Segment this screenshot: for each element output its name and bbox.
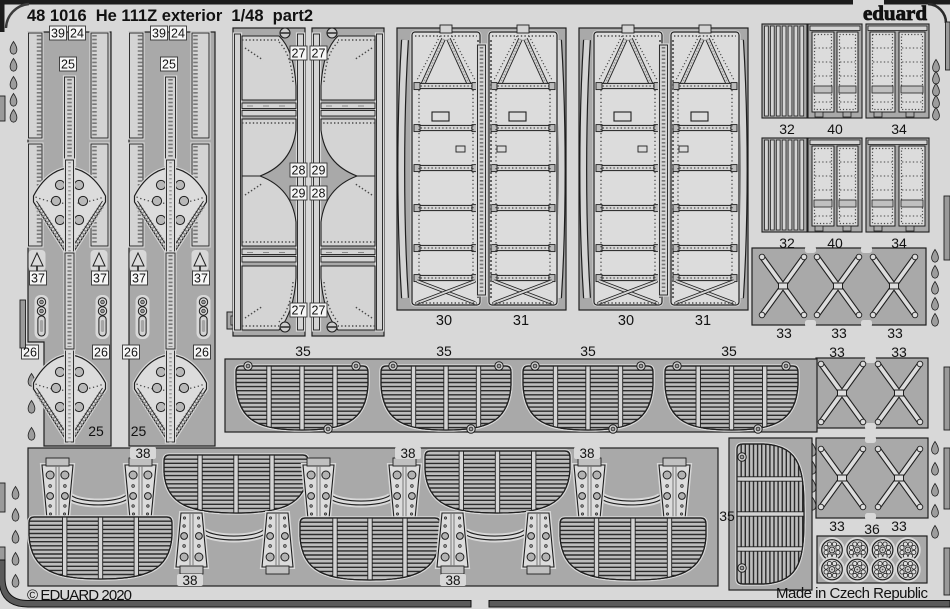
svg-text:27: 27 — [292, 47, 306, 61]
svg-text:© EDUARD 2020: © EDUARD 2020 — [27, 587, 132, 604]
svg-text:27: 27 — [312, 304, 326, 318]
svg-text:25: 25 — [88, 423, 104, 439]
svg-text:48 1016 He 111Z exterior 1/4: 48 1016 He 111Z exterior 1/48 part2 — [27, 7, 313, 25]
svg-text:38: 38 — [400, 446, 415, 461]
svg-text:25: 25 — [61, 58, 75, 72]
svg-text:33: 33 — [829, 344, 845, 360]
svg-text:33: 33 — [829, 518, 845, 534]
svg-text:28: 28 — [292, 164, 306, 178]
svg-text:37: 37 — [132, 272, 146, 286]
svg-text:33: 33 — [887, 325, 903, 341]
svg-text:33: 33 — [831, 325, 847, 341]
svg-text:37: 37 — [31, 272, 45, 286]
svg-text:30: 30 — [436, 313, 452, 329]
svg-text:38: 38 — [135, 446, 150, 461]
svg-text:37: 37 — [93, 272, 107, 286]
svg-text:Made in Czech Republic: Made in Czech Republic — [776, 585, 929, 602]
svg-text:26: 26 — [195, 346, 209, 360]
svg-text:33: 33 — [776, 325, 792, 341]
svg-text:32: 32 — [779, 121, 795, 137]
svg-text:38: 38 — [182, 573, 197, 588]
svg-text:24: 24 — [171, 27, 185, 41]
svg-text:35: 35 — [580, 343, 596, 359]
svg-text:26: 26 — [94, 346, 108, 360]
svg-text:35: 35 — [719, 508, 735, 524]
svg-text:24: 24 — [70, 27, 84, 41]
svg-text:39: 39 — [51, 27, 65, 41]
svg-text:31: 31 — [513, 313, 529, 329]
svg-text:33: 33 — [891, 344, 907, 360]
svg-text:35: 35 — [295, 343, 311, 359]
svg-text:29: 29 — [312, 164, 326, 178]
svg-text:35: 35 — [436, 343, 452, 359]
svg-text:31: 31 — [695, 313, 711, 329]
svg-text:eduard: eduard — [863, 1, 927, 25]
svg-text:33: 33 — [891, 518, 907, 534]
svg-text:38: 38 — [445, 573, 460, 588]
svg-text:28: 28 — [312, 187, 326, 201]
svg-text:37: 37 — [194, 272, 208, 286]
svg-text:35: 35 — [721, 343, 737, 359]
svg-text:25: 25 — [131, 423, 147, 439]
svg-text:34: 34 — [891, 121, 907, 137]
svg-text:40: 40 — [827, 121, 843, 137]
svg-text:30: 30 — [618, 313, 634, 329]
svg-text:39: 39 — [152, 27, 166, 41]
svg-text:36: 36 — [864, 521, 880, 537]
svg-text:27: 27 — [312, 47, 326, 61]
svg-text:26: 26 — [124, 346, 138, 360]
svg-text:27: 27 — [292, 304, 306, 318]
svg-text:29: 29 — [292, 187, 306, 201]
svg-text:38: 38 — [579, 446, 594, 461]
svg-text:25: 25 — [162, 58, 176, 72]
